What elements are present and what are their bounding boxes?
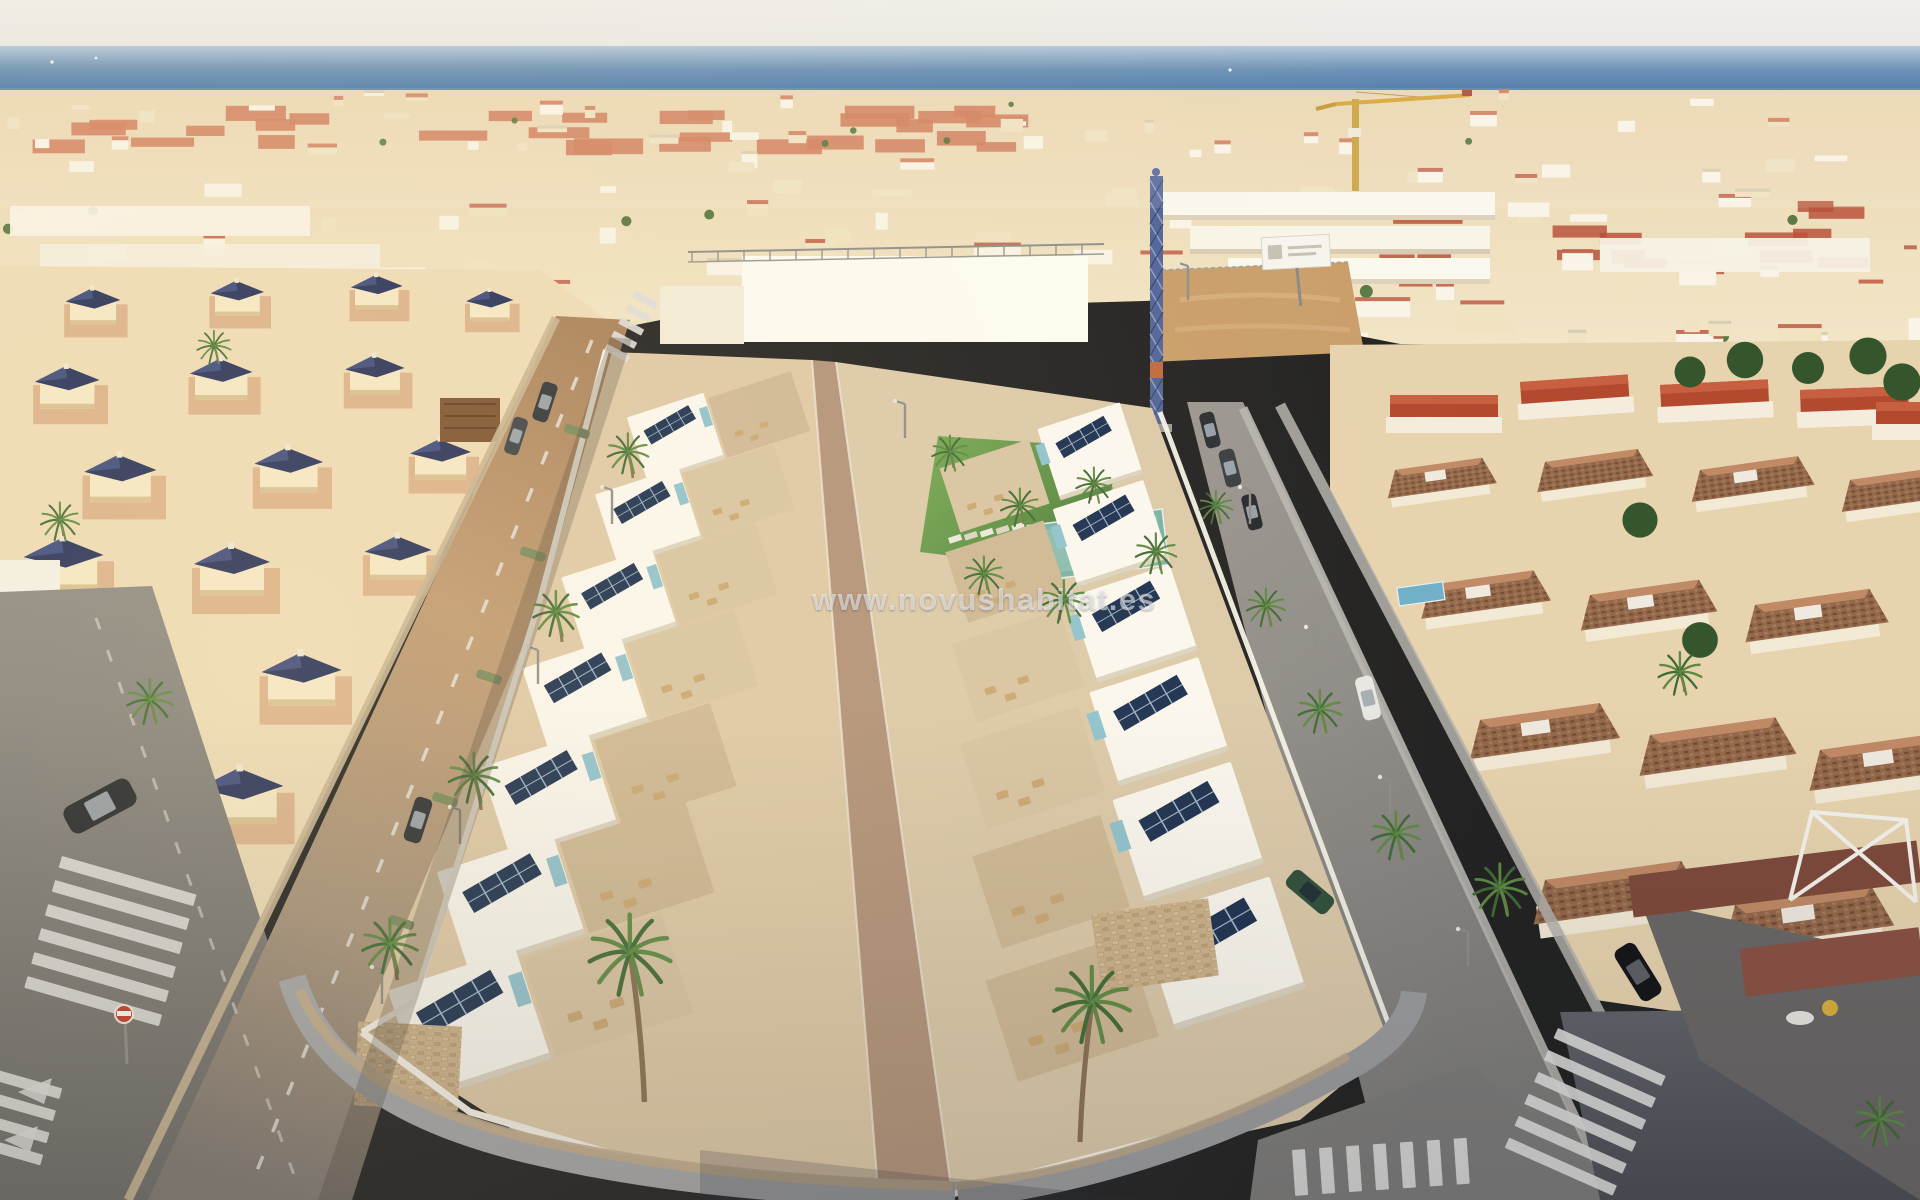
- watermark-text: www.novushabitat.es: [812, 582, 1156, 618]
- aerial-property-photo: www.novushabitat.es: [0, 0, 1920, 1200]
